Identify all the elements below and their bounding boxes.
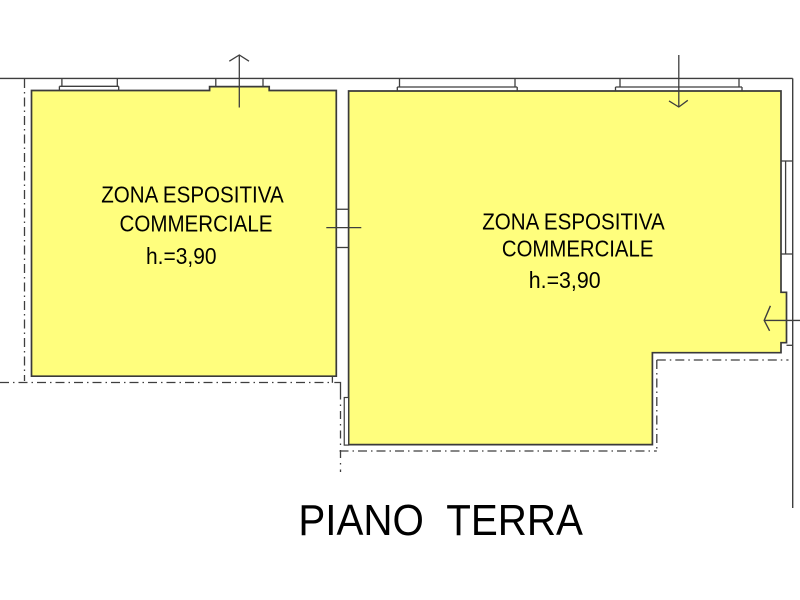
svg-text:COMMERCIALE: COMMERCIALE (502, 236, 654, 262)
svg-text:PIANO TERRA: PIANO TERRA (298, 496, 583, 545)
svg-text:h.=3,90: h.=3,90 (146, 243, 217, 269)
svg-text:COMMERCIALE: COMMERCIALE (120, 211, 273, 237)
svg-text:h.=3,90: h.=3,90 (529, 267, 601, 293)
svg-text:ZONA ESPOSITIVA: ZONA ESPOSITIVA (482, 209, 665, 235)
svg-text:ZONA ESPOSITIVA: ZONA ESPOSITIVA (101, 182, 284, 208)
